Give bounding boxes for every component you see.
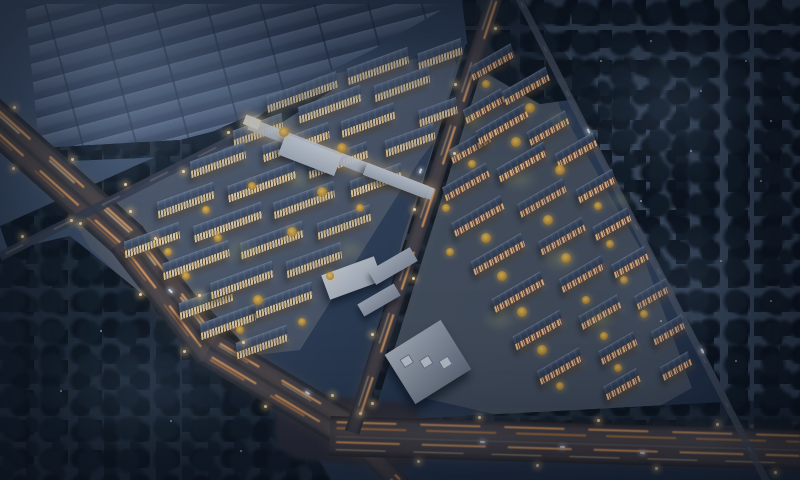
fog-patch — [540, 0, 800, 210]
scene — [0, 0, 800, 480]
fog-patch — [610, 396, 800, 480]
autumn-tree — [481, 233, 491, 243]
autumn-tree — [446, 248, 454, 256]
autumn-tree — [517, 307, 527, 317]
fog-patch — [560, 190, 800, 380]
courtyard-glow — [326, 233, 374, 267]
skylight — [419, 355, 434, 369]
autumn-tree — [497, 271, 507, 281]
street-lamp — [413, 208, 416, 211]
autumn-tree — [468, 160, 476, 168]
fog-patch — [330, 390, 590, 480]
autumn-tree — [442, 204, 450, 212]
autumn-tree — [537, 345, 547, 355]
autumn-tree — [556, 382, 564, 390]
fog-patch — [0, 60, 240, 220]
autumn-tree — [356, 204, 364, 212]
autumn-tree — [543, 215, 553, 225]
autumn-tree — [182, 272, 190, 280]
street-lamp — [198, 294, 201, 297]
autumn-tree — [287, 227, 297, 237]
street-lamp — [21, 235, 24, 238]
autumn-tree — [326, 272, 334, 280]
fog-patch — [0, 300, 300, 480]
street-lamp — [371, 333, 374, 336]
street-lamp — [154, 237, 157, 240]
autumn-tree — [214, 234, 222, 242]
skylight — [399, 354, 414, 368]
skylight — [438, 356, 453, 370]
fog-patch — [210, 20, 550, 140]
courtyard-glow — [494, 162, 546, 198]
autumn-tree — [164, 248, 172, 256]
